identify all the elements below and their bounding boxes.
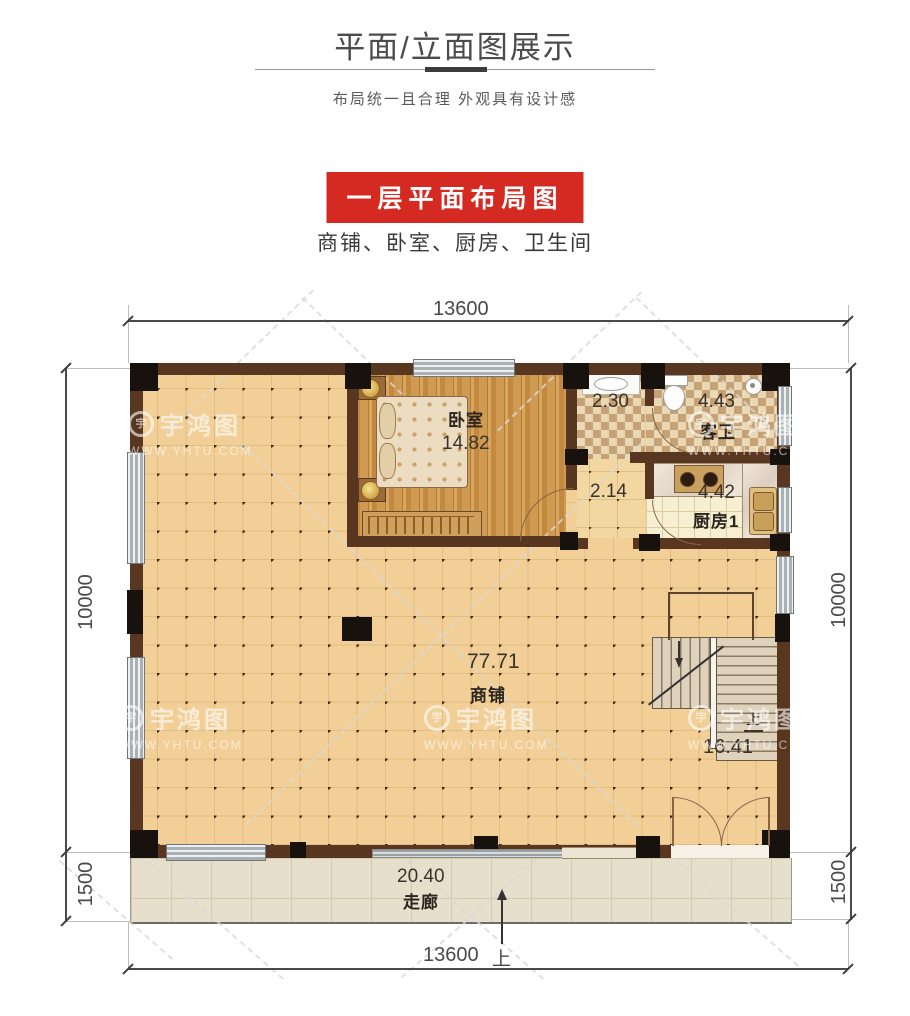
dim-top-width: 13600 <box>433 298 489 321</box>
stairs-void-outline <box>668 592 754 640</box>
entry-arrow-line <box>501 898 503 944</box>
column <box>775 614 790 642</box>
brand-url: WWW.YHTU.COM <box>128 444 253 458</box>
brand-logo-icon: 宇 <box>688 411 714 437</box>
dim-right-corridor: 1500 <box>828 852 848 912</box>
window-right-stairs <box>776 556 794 614</box>
window-right-kitchen <box>778 487 792 533</box>
bedroom-label: 卧室 <box>448 406 484 431</box>
dim-left-height: 10000 <box>75 572 95 632</box>
extension-line <box>128 922 129 969</box>
wardrobe-icon <box>362 511 482 539</box>
corridor-label: 走廊 <box>403 888 439 913</box>
sink-basin <box>753 512 774 531</box>
entry-arrow-head <box>497 889 507 900</box>
extension-line <box>66 852 130 853</box>
floor-drain-icon <box>745 378 762 395</box>
brand-watermark: 宇 宇鸿图 WWW.YHTU.COM <box>128 406 253 458</box>
dim-entry-direction: 上 <box>492 944 511 971</box>
brand-url: WWW.YHTU.COM <box>424 738 549 752</box>
wardrobe-hangers <box>368 516 474 534</box>
brand-watermark: 宇 宇鸿图 WWW.YHTU.COM <box>424 700 549 752</box>
column <box>290 842 306 858</box>
column <box>130 830 158 858</box>
wall-bedroom-right <box>566 372 577 490</box>
corridor-area: 20.40 <box>397 866 445 888</box>
brand-logo-icon: 宇 <box>128 411 154 437</box>
column <box>636 836 660 858</box>
column <box>563 363 589 389</box>
kitchen-area: 4.42 <box>698 482 735 504</box>
stairs-left-flight <box>652 637 715 709</box>
storefront-sliding-door <box>372 849 564 858</box>
entry-door-leaf-line <box>768 797 770 846</box>
entry-door-opening <box>671 845 769 858</box>
brand-watermark: 宇 宇鸿图 WWW.YHTU.COM <box>688 700 813 752</box>
brand-watermark: 宇 宇鸿图 WWW.YHTU.COM <box>688 406 813 458</box>
washbasin-icon <box>594 377 628 391</box>
dim-left-corridor: 1500 <box>75 854 95 914</box>
column <box>639 534 660 551</box>
dim-bottom-width: 13600 <box>423 944 479 967</box>
kitchen-sink-icon <box>749 487 777 535</box>
brand-name: 宇鸿图 <box>720 406 801 441</box>
extension-line <box>790 919 851 920</box>
wall-bedroom-left <box>347 372 358 547</box>
window-bottom-left <box>166 844 266 861</box>
dimension-line-right <box>850 368 852 920</box>
column <box>130 363 158 391</box>
bedroom-area: 14.82 <box>442 433 490 455</box>
stairs-direction-line <box>678 641 680 659</box>
floor-plan: 卧室 14.82 2.30 4.43 客卫 2.14 4.42 厨房1 77.7… <box>0 0 910 1016</box>
extension-line <box>848 922 849 969</box>
dim-right-height: 10000 <box>828 570 848 630</box>
column <box>345 363 371 389</box>
window-top <box>413 359 515 377</box>
entry-door-leaf-line <box>672 797 674 846</box>
sink-basin <box>753 492 774 511</box>
stairs-direction-arrow <box>675 658 683 668</box>
brand-logo-icon: 宇 <box>118 705 144 731</box>
storefront-opening <box>562 847 636 859</box>
extension-line <box>848 305 849 363</box>
brand-name: 宇鸿图 <box>160 406 241 441</box>
wall-passage-kitchen-divider <box>645 463 654 499</box>
brand-name: 宇鸿图 <box>150 700 231 735</box>
column <box>641 363 665 389</box>
brand-url: WWW.YHTU.COM <box>688 738 813 752</box>
brand-url: WWW.YHTU.COM <box>688 444 813 458</box>
column <box>770 534 790 551</box>
brand-url: WWW.YHTU.COM <box>118 738 243 752</box>
washroom-area: 2.30 <box>592 391 629 413</box>
brand-watermark: 宇 宇鸿图 WWW.YHTU.COM <box>118 700 243 752</box>
dimension-line-bottom <box>128 968 848 970</box>
extension-line <box>66 368 130 369</box>
column <box>565 449 588 465</box>
room-corridor-floor <box>130 858 792 924</box>
page: 平面/立面图展示 布局统一且合理 外观具有设计感 一层平面布局图 商铺、卧室、厨… <box>0 0 910 1016</box>
window-left-upper <box>127 452 145 564</box>
brand-name: 宇鸿图 <box>720 700 801 735</box>
dimension-line-left <box>65 368 67 922</box>
pillow-icon <box>379 403 396 439</box>
column <box>342 617 372 641</box>
extension-line <box>66 921 130 922</box>
brand-name: 宇鸿图 <box>456 700 537 735</box>
brand-logo-icon: 宇 <box>688 705 714 731</box>
column <box>127 590 143 634</box>
passage-area: 2.14 <box>590 481 627 503</box>
kitchen-label: 厨房1 <box>693 507 739 532</box>
shop-area: 77.71 <box>467 650 520 674</box>
pillow-icon <box>379 443 396 479</box>
extension-line <box>790 368 851 369</box>
extension-line <box>128 305 129 363</box>
brand-logo-icon: 宇 <box>424 705 450 731</box>
burner-icon <box>680 472 695 487</box>
